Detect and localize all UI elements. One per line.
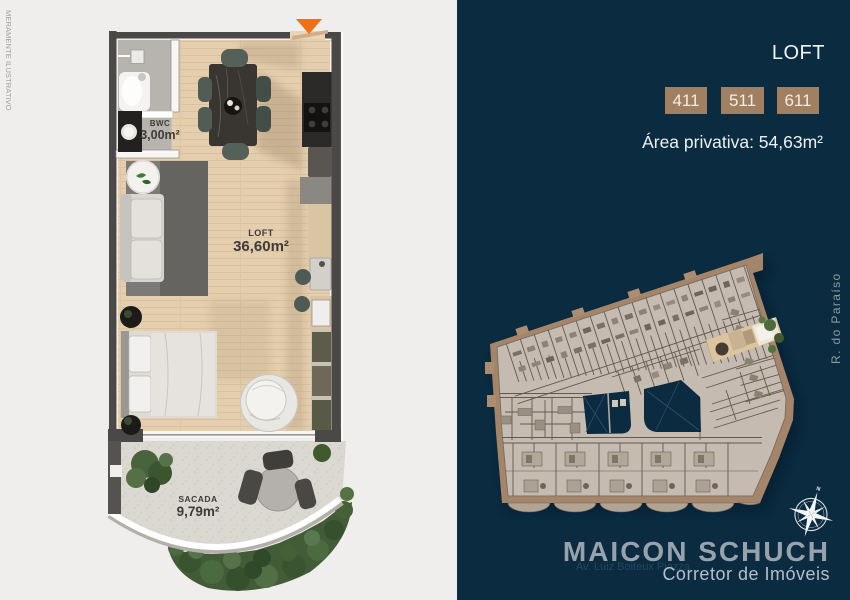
svg-text:N: N (815, 486, 820, 493)
